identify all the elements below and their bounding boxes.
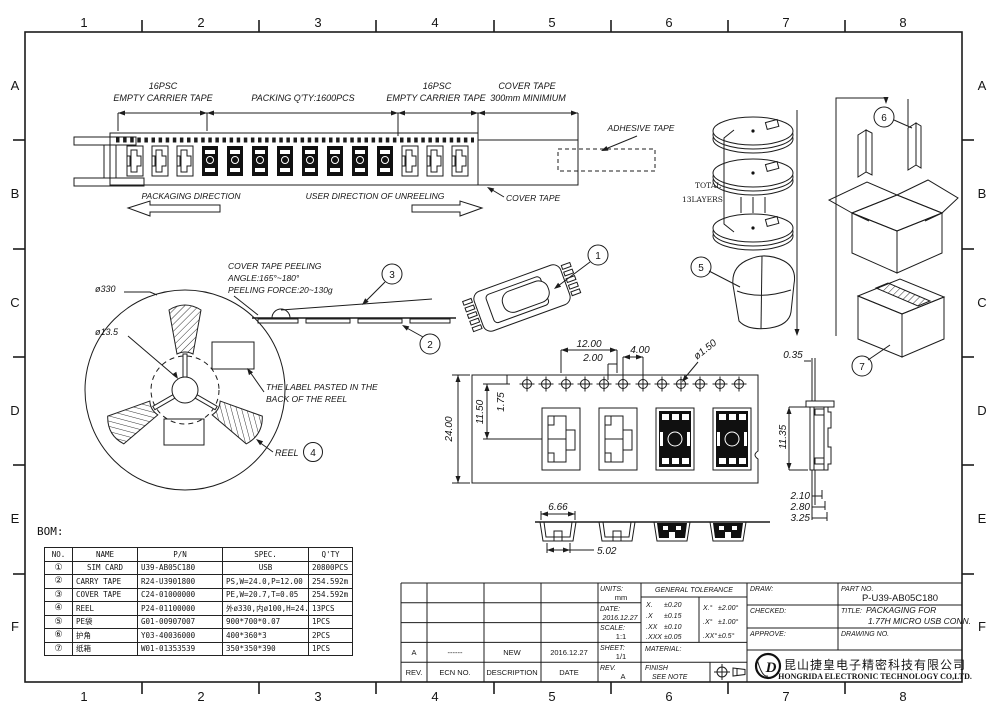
part-no-value: P-U39-AB05C180 — [862, 593, 938, 604]
zone-number: 6 — [665, 15, 672, 30]
finish-value: SEE NOTE — [652, 674, 688, 681]
dim-reel-hub-dia: ø13.5 — [95, 327, 119, 337]
bom-cell-name: CARRY TAPE — [73, 575, 138, 589]
zone-number: 3 — [314, 689, 321, 704]
dim-dia-1-50: ø1.50 — [692, 338, 719, 363]
bom-header: NAME — [73, 548, 138, 562]
bom-cell-pn: W01-01353539 — [138, 642, 223, 656]
approve-label: APPROVE: — [749, 631, 786, 638]
bom-header: SPEC. — [223, 548, 309, 562]
sheet-value: 1/1 — [616, 652, 626, 661]
bom-row: ② CARRY TAPE R24-U3901800 PS,W=24.0,P=12… — [45, 575, 353, 589]
bom-cell-qty: 1PCS — [309, 642, 353, 656]
zone-letter: A — [978, 78, 987, 93]
balloon-2: 2 — [427, 340, 433, 351]
bom-cell-qty: 1PCS — [309, 615, 353, 629]
zone-number: 2 — [197, 689, 204, 704]
tape-strip-view: 16PSC EMPTY CARRIER TAPE PACKING Q'TY:16… — [74, 81, 675, 216]
note-label-pasted-1: THE LABEL PASTED IN THE — [266, 382, 378, 392]
description-value: NEW — [503, 648, 521, 657]
bom-cell-no: ④ — [45, 602, 73, 616]
dim-4-00: 4.00 — [630, 345, 650, 356]
zone-letter: B — [978, 186, 987, 201]
title-line-1: PACKAGING FOR — [866, 605, 936, 615]
tol-lin-sym: .X — [646, 613, 653, 620]
zone-letter: B — [11, 186, 20, 201]
dim-2-00: 2.00 — [582, 353, 603, 364]
info-column: UNITS: mm DATE: 2016.12.27 SCALE: 1:1 SH… — [600, 586, 639, 681]
dim-0-35: 0.35 — [783, 350, 803, 361]
balloon-3: 3 — [389, 270, 395, 281]
dim-12-00: 12.00 — [576, 339, 601, 350]
label-cover-tape-ptr: COVER TAPE — [506, 193, 560, 203]
bom-cell-no: ③ — [45, 588, 73, 602]
label-cover-tape-top: COVER TAPE — [498, 81, 556, 91]
svg-text:D: D — [765, 660, 777, 676]
bom-cell-pn: Y03-40036000 — [138, 629, 223, 643]
tol-lin-val: ±0.15 — [664, 613, 682, 620]
dim-11-50: 11.50 — [475, 399, 486, 424]
bom-row: ⑦ 纸箱 W01-01353539 350*350*390 1PCS — [45, 642, 353, 656]
bom-header: NO. — [45, 548, 73, 562]
bom-cell-spec: PE,W=20.7,T=0.05 — [223, 588, 309, 602]
zone-letter: F — [11, 619, 19, 634]
tol-ang-val: ±2.00° — [718, 604, 738, 612]
tol-ang-val: ±0.5° — [718, 632, 735, 640]
dim-24-00: 24.00 — [444, 416, 455, 442]
bom-cell-pn: U39-AB05C180 — [138, 561, 223, 575]
zone-number: 1 — [80, 689, 87, 704]
bom-cell-pn: P24-01100000 — [138, 602, 223, 616]
bom-header: P/N — [138, 548, 223, 562]
bom-cell-no: ① — [45, 561, 73, 575]
bom-cell-pn: G01-00907007 — [138, 615, 223, 629]
rev-label: REV. — [600, 665, 616, 672]
part-no-label: PART NO. — [841, 586, 873, 593]
label-13layers: 13LAYERS — [682, 195, 723, 204]
balloon-7: 7 — [859, 362, 865, 373]
scale-value: 1:1 — [616, 632, 626, 641]
label-right-empty-carrier: EMPTY CARRIER TAPE — [386, 93, 486, 103]
dim-reel-outer-dia: ø330 — [95, 284, 116, 294]
label-right-16psc: 16PSC — [423, 81, 452, 91]
projection-symbol — [714, 664, 745, 680]
note-peel-2: ANGLE:165°~180° — [227, 273, 300, 283]
bom-cell-name: SIM CARD — [73, 561, 138, 575]
tol-lin-sym: X. — [645, 602, 653, 609]
title-label: TITLE: — [841, 608, 862, 615]
note-peel-3: PEELING FORCE:20~130g — [228, 285, 333, 295]
dim-6-66: 6.66 — [548, 502, 568, 513]
bom-cell-no: ⑥ — [45, 629, 73, 643]
bom-cell-name: 纸箱 — [73, 642, 138, 656]
scale-label: SCALE: — [600, 625, 625, 632]
bom-cell-qty: 20800PCS — [309, 561, 353, 575]
zone-number: 5 — [548, 15, 555, 30]
company-name-cn: 昆山捷皇电子精密科技有限公司 — [784, 657, 966, 672]
sheet-label: SHEET: — [600, 645, 625, 652]
bom-cell-name: PE袋 — [73, 615, 138, 629]
bom-cell-qty: 13PCS — [309, 602, 353, 616]
rev-value: A — [620, 672, 625, 681]
connector-isometric: 1 — [461, 245, 608, 337]
bom-cell-spec: PS,W=24.0,P=12.00 — [223, 575, 309, 589]
signature-block: DRAW: CHECKED: APPROVE: PART NO. P-U39-A… — [749, 586, 971, 638]
label-packing-qty: PACKING Q'TY:1600PCS — [251, 93, 354, 103]
reel-stack-view: TOTAL 13LAYERS — [682, 97, 908, 336]
company-logo: D — [756, 654, 780, 678]
zone-letter: C — [10, 295, 19, 310]
rev-header: REV. — [406, 668, 423, 677]
units-label: UNITS: — [600, 586, 623, 593]
checked-label: CHECKED: — [750, 608, 786, 615]
carton-views — [829, 107, 958, 376]
bom-cell-pn: C24-01000000 — [138, 588, 223, 602]
zone-letter: E — [978, 511, 987, 526]
bom-row: ⑤ PE袋 G01-00907007 900*700*0.07 1PCS — [45, 615, 353, 629]
dim-2-80: 2.80 — [790, 502, 811, 513]
company-block: D 昆山捷皇电子精密科技有限公司 HONGRIDA ELECTRONIC TEC… — [756, 654, 972, 681]
pe-bag-view: 5 — [691, 256, 795, 329]
zone-number: 4 — [431, 15, 438, 30]
label-adhesive-tape: ADHESIVE TAPE — [607, 123, 675, 133]
date-value: 2016.12.27 — [550, 648, 588, 657]
ecn-header: ECN NO. — [439, 668, 470, 677]
bom-table: NO. NAME P/N SPEC. Q'TY ① SIM CARD U39-A… — [44, 547, 353, 656]
zone-number: 2 — [197, 15, 204, 30]
zone-letter: C — [977, 295, 986, 310]
drawing-no-label: DRAWING NO. — [841, 631, 889, 638]
bom-cell-no: ⑤ — [45, 615, 73, 629]
peeling-detail-view: COVER TAPE PEELING ANGLE:165°~180° PEELI… — [227, 261, 456, 354]
balloon-4: 4 — [310, 448, 316, 459]
material-label: MATERIAL: — [645, 646, 681, 653]
label-unreeling-direction: USER DIRECTION OF UNREELING — [306, 191, 445, 201]
drawing-sheet: 1 2 3 4 5 6 7 8 1 2 3 4 5 6 7 8 A B C D … — [0, 0, 999, 709]
bom-cell-name: 护角 — [73, 629, 138, 643]
note-peel-1: COVER TAPE PEELING — [228, 261, 322, 271]
bom-cell-spec: USB — [223, 561, 309, 575]
bom-cell-qty: 254.592m — [309, 575, 353, 589]
dim-11-35: 11.35 — [778, 424, 789, 449]
bom-caption: BOM: — [37, 525, 64, 538]
date-header: DATE — [559, 668, 578, 677]
bom-cell-no: ⑦ — [45, 642, 73, 656]
reel-detail-view: ø330 ø13.5 THE LABEL PASTED IN THE BACK … — [85, 284, 378, 490]
bom-cell-name: REEL — [73, 602, 138, 616]
bom-cell-pn: R24-U3901800 — [138, 575, 223, 589]
bom-cell-qty: 2PCS — [309, 629, 353, 643]
tol-lin-sym: .XX — [646, 624, 658, 631]
tol-lin-val: ±0.05 — [664, 634, 682, 641]
carrier-tape-dimension-view: 24.00 11.50 1.75 12.00 2.00 4.00 ø1.50 — [444, 338, 758, 483]
bom-cell-spec: 外ø330,内ø100,H=24.0 — [223, 602, 309, 616]
label-left-empty-carrier: EMPTY CARRIER TAPE — [113, 93, 213, 103]
label-cover-min: 300mm MINIMIUM — [490, 93, 566, 103]
bom-row: ③ COVER TAPE C24-01000000 PE,W=20.7,T=0.… — [45, 588, 353, 602]
finish-label: FINISH — [645, 665, 669, 672]
tol-ang-sym: .XX° — [703, 632, 717, 640]
rev-value: A — [411, 648, 416, 657]
bom-row: ④ REEL P24-01100000 外ø330,内ø100,H=24.0 1… — [45, 602, 353, 616]
draw-label: DRAW: — [750, 586, 773, 593]
zone-number: 6 — [665, 689, 672, 704]
packaging-direction-arrow — [128, 201, 220, 216]
tol-ang-sym: X.° — [702, 604, 713, 612]
company-name-en: HONGRIDA ELECTRONIC TECHNOLOGY CO,LTD. — [778, 672, 972, 681]
zone-letter: D — [977, 403, 986, 418]
zone-number: 8 — [899, 689, 906, 704]
zone-number: 4 — [431, 689, 438, 704]
bom-row: ① SIM CARD U39-AB05C180 USB 20800PCS — [45, 561, 353, 575]
reel-label-sticker — [212, 342, 254, 369]
zone-number: 3 — [314, 15, 321, 30]
balloon-5: 5 — [698, 263, 704, 274]
dim-3-25: 3.25 — [791, 513, 811, 524]
dim-5-02: 5.02 — [597, 546, 617, 557]
zone-number: 5 — [548, 689, 555, 704]
label-total: TOTAL — [695, 181, 721, 190]
balloon-6: 6 — [881, 113, 887, 124]
tape-section-view: 6.66 5.02 — [535, 502, 770, 557]
zone-letter: E — [11, 511, 20, 526]
zone-letter: D — [10, 403, 19, 418]
ecn-value: ------ — [448, 648, 463, 657]
bom-cell-spec: 900*700*0.07 — [223, 615, 309, 629]
bom-header: Q'TY — [309, 548, 353, 562]
balloon-1: 1 — [595, 251, 601, 262]
bom-cell-qty: 254.592m — [309, 588, 353, 602]
label-left-16psc: 16PSC — [149, 81, 178, 91]
bom-cell-spec: 400*360*3 — [223, 629, 309, 643]
bom-cell-no: ② — [45, 575, 73, 589]
label-packaging-direction: PACKAGING DIRECTION — [141, 191, 241, 201]
bom-row: ⑥ 护角 Y03-40036000 400*360*3 2PCS — [45, 629, 353, 643]
zone-letter: A — [11, 78, 20, 93]
tolerance-block: GENERAL TOLERANCE X. ±0.20 .X ±0.15 .XX … — [645, 587, 745, 681]
units-value: mm — [615, 593, 628, 602]
tol-lin-val: ±0.20 — [664, 602, 682, 609]
description-header: DESCRIPTION — [486, 668, 537, 677]
reel-label-sticker — [164, 419, 204, 445]
date-value: 2016.12.27 — [601, 615, 638, 622]
label-reel: REEL — [275, 448, 299, 458]
side-profile-view: 0.35 11.35 2.10 2.80 3.25 — [778, 350, 834, 524]
dim-2-10: 2.10 — [790, 491, 811, 502]
tol-ang-sym: .X° — [703, 618, 713, 626]
tol-lin-sym: .XXX — [646, 634, 662, 641]
zone-number: 1 — [80, 15, 87, 30]
date-label: DATE: — [600, 606, 620, 613]
zone-number: 8 — [899, 15, 906, 30]
title-line-2: 1.77H MICRO USB CONN. — [868, 616, 971, 626]
unreeling-direction-arrow — [412, 201, 482, 216]
zone-number: 7 — [782, 15, 789, 30]
note-label-pasted-2: BACK OF THE REEL — [266, 394, 347, 404]
tol-ang-val: ±1.00° — [718, 618, 738, 626]
tol-lin-val: ±0.10 — [664, 624, 682, 631]
dim-1-75: 1.75 — [496, 392, 507, 412]
tolerance-header: GENERAL TOLERANCE — [655, 587, 733, 594]
bom-cell-name: COVER TAPE — [73, 588, 138, 602]
zone-letter: F — [978, 619, 986, 634]
bom-header-row: NO. NAME P/N SPEC. Q'TY — [45, 548, 353, 562]
zone-number: 7 — [782, 689, 789, 704]
bom-cell-spec: 350*350*390 — [223, 642, 309, 656]
